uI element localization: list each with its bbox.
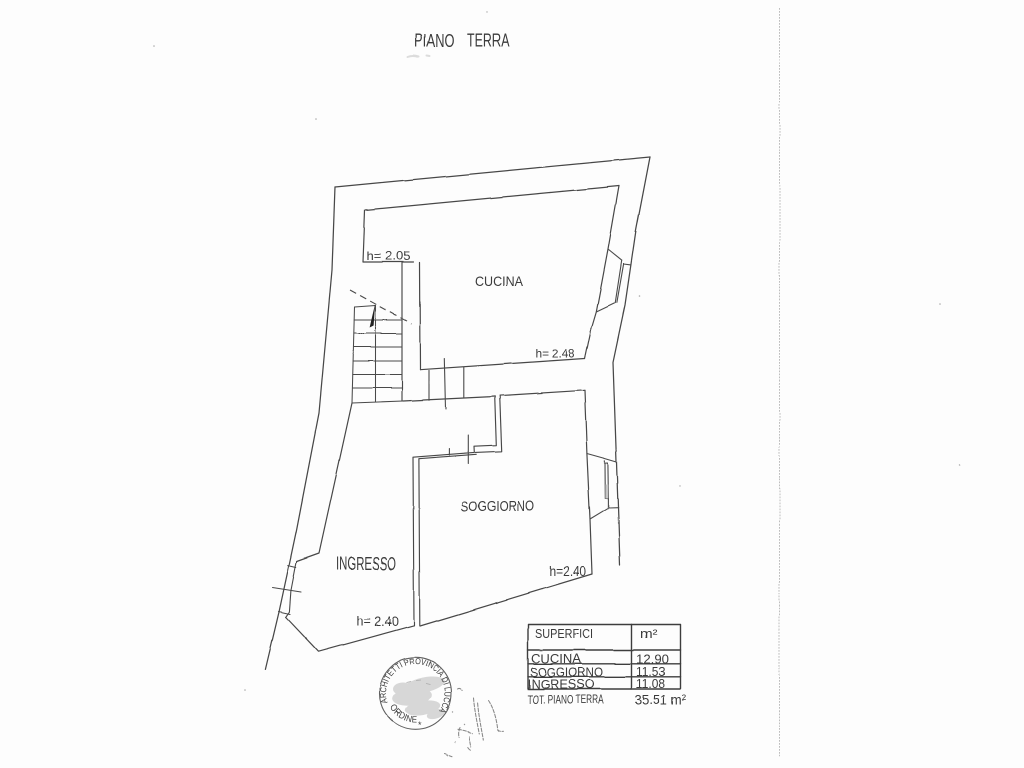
svg-text:INGRESSO: INGRESSO (336, 554, 396, 574)
svg-text:h= 2.40: h= 2.40 (357, 613, 399, 629)
svg-text:h=2.40: h=2.40 (549, 564, 586, 579)
svg-text:*: * (418, 720, 422, 730)
svg-text:SUPERFICI: SUPERFICI (535, 626, 593, 641)
svg-text:TOT. PIANO TERRA: TOT. PIANO TERRA (528, 693, 604, 707)
svg-text:h= 2.05: h= 2.05 (367, 249, 411, 263)
svg-text:PIANO: PIANO (415, 31, 455, 51)
svg-text:m²: m² (640, 626, 658, 641)
svg-text:h= 2.48: h= 2.48 (535, 347, 575, 361)
svg-text:INGRESSO: INGRESSO (528, 677, 595, 692)
svg-text:TERRA: TERRA (467, 31, 509, 51)
svg-text:CUCINA: CUCINA (475, 273, 524, 289)
svg-text:11.08: 11.08 (636, 676, 665, 691)
svg-text:35.51 m²: 35.51 m² (635, 692, 686, 708)
svg-text:SOGGIORNO: SOGGIORNO (461, 498, 534, 515)
